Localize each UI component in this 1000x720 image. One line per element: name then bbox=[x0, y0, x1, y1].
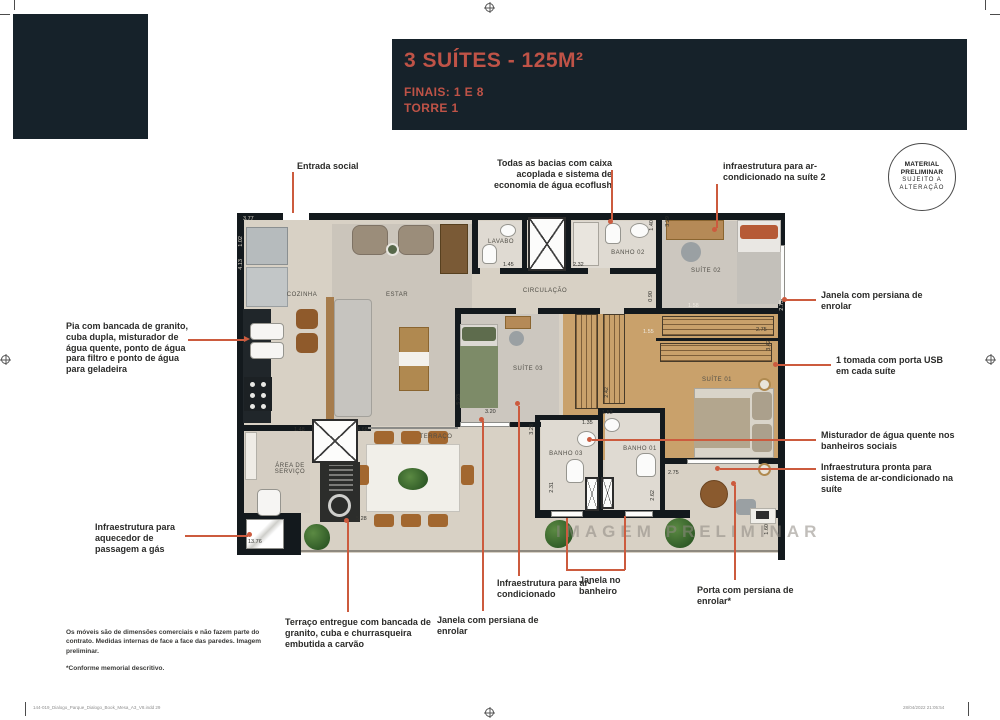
leader-line bbox=[188, 339, 244, 341]
registration-mark-icon bbox=[1, 355, 10, 364]
disclaimer-text: Os móveis são de dimensões comerciais e … bbox=[66, 628, 271, 656]
shower-banho02 bbox=[573, 222, 599, 266]
toilet-banho02 bbox=[605, 223, 621, 244]
room-label-banho02: BANHO 02 bbox=[603, 250, 653, 256]
entrada-door-gap bbox=[283, 213, 309, 220]
room-label-terraco: TERRAÇO bbox=[412, 434, 460, 440]
measurement: 3.29 bbox=[665, 216, 671, 227]
leader-line bbox=[734, 485, 736, 580]
kitchen-cabinet bbox=[246, 267, 288, 307]
room-label-banho03: BANHO 03 bbox=[542, 451, 590, 457]
closet-suite01 bbox=[660, 343, 772, 362]
armchair bbox=[352, 225, 388, 255]
callout-bacias: Todas as bacias com caixa acoplada e sis… bbox=[480, 158, 612, 190]
window-banho03 bbox=[551, 511, 583, 517]
table-plant bbox=[398, 468, 428, 490]
terraco-chair bbox=[374, 431, 394, 444]
terraco-chair bbox=[428, 514, 448, 527]
pillow-suite01 bbox=[752, 424, 772, 452]
wall-top bbox=[237, 213, 785, 220]
tv-rack bbox=[440, 224, 468, 274]
registration-mark-icon bbox=[485, 708, 494, 717]
leader-line bbox=[566, 518, 568, 570]
stove bbox=[244, 377, 272, 411]
leader-dot bbox=[608, 219, 613, 224]
measurement: 1.02 bbox=[238, 236, 244, 247]
shaft-box bbox=[601, 477, 614, 509]
crop-mark bbox=[985, 0, 986, 10]
plant bbox=[304, 524, 330, 550]
leader-dot bbox=[344, 518, 349, 523]
leader-line bbox=[786, 299, 816, 301]
terraco-chair bbox=[401, 514, 421, 527]
stool bbox=[296, 309, 318, 329]
room-label-cozinha: COZINHA bbox=[272, 292, 332, 298]
desk-suite03 bbox=[505, 316, 531, 329]
leader-line bbox=[482, 421, 484, 611]
callout-porta-persiana: Porta com persiana de enrolar* bbox=[697, 585, 797, 607]
callout-infra-aquecedor: Infraestrutura para aquecedor de passage… bbox=[95, 522, 190, 554]
watermark: IMAGEM PRELIMINAR bbox=[556, 522, 821, 542]
leader-dot bbox=[247, 532, 252, 537]
measurement: 13.76 bbox=[248, 539, 262, 545]
round-mirror bbox=[758, 463, 771, 476]
badge-line: PRELIMINAR bbox=[901, 169, 943, 177]
callout-janela-persiana-baixo: Janela com persiana de enrolar bbox=[437, 615, 542, 637]
corner-block bbox=[13, 14, 148, 139]
badge-line: SUJEITO A bbox=[902, 177, 942, 185]
window-banho01 bbox=[625, 511, 653, 517]
pillow-suite03 bbox=[462, 327, 496, 341]
stool bbox=[296, 333, 318, 353]
window-suite03 bbox=[460, 422, 510, 427]
door-gap-lavabo bbox=[480, 268, 500, 274]
callout-entrada-social: Entrada social bbox=[297, 161, 359, 172]
measurement: 1.53 bbox=[602, 410, 613, 416]
measurement: 2.75 bbox=[668, 470, 679, 476]
registration-mark-icon bbox=[485, 3, 494, 12]
measurement: 1.60 bbox=[764, 524, 770, 535]
measurement: 3.20 bbox=[485, 409, 496, 415]
leader-dot bbox=[587, 437, 592, 442]
measurement: 0.90 bbox=[648, 291, 654, 302]
door-gap-banho02 bbox=[588, 268, 610, 274]
measurement: 2.62 bbox=[650, 490, 656, 501]
fridge bbox=[246, 227, 288, 265]
round-table bbox=[700, 480, 728, 508]
laptop bbox=[756, 511, 769, 519]
grill-vents bbox=[329, 465, 353, 491]
tanque bbox=[257, 489, 281, 516]
service-door bbox=[245, 432, 257, 480]
leader-dot bbox=[515, 401, 520, 406]
measurement: 4.68 bbox=[357, 427, 368, 433]
crop-mark bbox=[14, 0, 15, 10]
leader-line bbox=[566, 569, 625, 571]
measurement: 2.31 bbox=[549, 482, 555, 493]
shaft-box bbox=[528, 217, 566, 271]
room-label-suite02: SUÍTE 02 bbox=[681, 268, 731, 274]
measurement: 1.55 bbox=[643, 329, 654, 335]
leader-line bbox=[185, 535, 248, 537]
measurement: 5.23 bbox=[456, 394, 462, 405]
registration-mark-icon bbox=[986, 355, 995, 364]
room-label-circulacao: CIRCULAÇÃO bbox=[514, 288, 576, 294]
leader-line bbox=[347, 522, 349, 612]
room-label-lavabo: LAVABO bbox=[479, 239, 523, 245]
cover-suite03 bbox=[460, 346, 498, 408]
room-label-suite01: SUÍTE 01 bbox=[692, 377, 742, 383]
room-label-suite03: SUÍTE 03 bbox=[503, 366, 553, 372]
toilet-banho03 bbox=[566, 459, 584, 483]
room-label-estar: ESTAR bbox=[372, 292, 422, 298]
wall-banho03-left bbox=[535, 415, 540, 515]
sink-banho01 bbox=[604, 418, 620, 432]
table-runner bbox=[399, 352, 429, 366]
measurement: 1.48 bbox=[294, 427, 305, 433]
crop-mark bbox=[25, 702, 26, 716]
leader-line bbox=[624, 516, 626, 570]
measurement: 2.32 bbox=[573, 262, 584, 268]
file-info: 144-019_Dialogo_Parque_Dialogo_Book_Mesa… bbox=[33, 705, 160, 710]
crop-mark bbox=[968, 702, 969, 716]
wall-shaft-right bbox=[566, 213, 571, 274]
side-table bbox=[386, 243, 399, 256]
leader-dot bbox=[773, 362, 778, 367]
sliding-door-frame bbox=[368, 427, 458, 429]
measurement: 1.35 bbox=[582, 420, 593, 426]
badge-line: MATERIAL bbox=[905, 161, 940, 169]
grill-icon bbox=[328, 494, 351, 517]
leader-line bbox=[716, 184, 718, 228]
preliminary-badge: MATERIAL PRELIMINAR SUJEITO A ALTERAÇÃO bbox=[888, 143, 956, 211]
measurement: 3.28 bbox=[529, 424, 535, 435]
callout-misturador: Misturador de água quente nos banheiros … bbox=[821, 430, 959, 452]
shaft-box bbox=[585, 477, 599, 511]
memorial-note: *Conforme memorial descritivo. bbox=[66, 664, 271, 673]
measurement: 2.75 bbox=[756, 327, 767, 333]
wall-circulacao-bottom bbox=[455, 308, 660, 314]
closet-suite02 bbox=[662, 316, 774, 336]
leader-line bbox=[720, 468, 816, 470]
callout-tomada-usb: 1 tomada com porta USB em cada suíte bbox=[836, 355, 956, 377]
blanket-suite02 bbox=[737, 252, 781, 304]
leader-dot bbox=[712, 227, 717, 232]
sofa bbox=[334, 299, 372, 417]
terraco-chair bbox=[374, 514, 394, 527]
wall-lavabo-left bbox=[472, 213, 478, 274]
chair-suite02 bbox=[681, 242, 701, 262]
armchair bbox=[398, 225, 434, 255]
measurement: 3.77 bbox=[243, 216, 254, 222]
wall-suite02-left bbox=[656, 213, 662, 314]
sink-banho02 bbox=[630, 223, 649, 238]
room-label-banho01: BANHO 01 bbox=[616, 446, 664, 452]
leader-line bbox=[518, 406, 520, 576]
callout-infra-suite2: infraestrutura para ar-condicionado na s… bbox=[723, 161, 835, 183]
leader-line bbox=[611, 170, 613, 220]
crop-mark bbox=[0, 14, 10, 15]
leader-arrow bbox=[244, 336, 250, 342]
terraco-chair bbox=[461, 465, 474, 485]
leader-line bbox=[292, 172, 294, 213]
badge-line: ALTERAÇÃO bbox=[900, 185, 945, 193]
brochure-page: 3 SUÍTES - 125M² FINAIS: 1 E 8 TORRE 1 M… bbox=[0, 0, 1000, 720]
toilet-banho01 bbox=[636, 453, 656, 477]
header-torre: TORRE 1 bbox=[404, 101, 459, 115]
stove-burners bbox=[250, 382, 255, 387]
leader-dot bbox=[715, 466, 720, 471]
measurement: 5.28 bbox=[356, 516, 367, 522]
sofa-console bbox=[326, 297, 334, 419]
header-finais: FINAIS: 1 E 8 bbox=[404, 85, 484, 99]
pillow-suite01 bbox=[752, 392, 772, 420]
terraco-edge bbox=[301, 550, 778, 552]
porta-persiana-sill bbox=[687, 459, 759, 464]
churrasqueira bbox=[320, 462, 360, 522]
pillow-suite02 bbox=[740, 225, 778, 239]
leader-dot bbox=[731, 481, 736, 486]
door-gap-suite03 bbox=[516, 308, 538, 314]
wall-suite02-bottom bbox=[656, 308, 785, 314]
print-timestamp: 28/04/2022 21:05:54 bbox=[903, 705, 944, 710]
leader-dot bbox=[479, 417, 484, 422]
leader-dot bbox=[782, 297, 787, 302]
measurement: 4.13 bbox=[238, 259, 244, 270]
kitchen-sink bbox=[250, 323, 284, 340]
callout-pia: Pia com bancada de granito, cuba dupla, … bbox=[66, 321, 194, 375]
measurement: 1.40 bbox=[649, 220, 655, 231]
round-mirror bbox=[758, 378, 771, 391]
blanket-suite01 bbox=[694, 398, 750, 448]
measurement: 3.42 bbox=[766, 340, 772, 351]
callout-infra-ar: Infraestrutura para ar-condicionado bbox=[497, 578, 593, 600]
callout-terraco-entregue: Terraço entregue com bancada de granito,… bbox=[285, 617, 437, 649]
page-title: 3 SUÍTES - 125M² bbox=[404, 49, 584, 73]
leader-line bbox=[592, 439, 816, 441]
wall-circulacao-top bbox=[472, 268, 662, 274]
measurement: 1.45 bbox=[503, 262, 514, 268]
callout-janela-persiana-direita: Janela com persiana de enrolar bbox=[821, 290, 929, 312]
toilet-lavabo bbox=[482, 244, 497, 264]
leader-line bbox=[777, 364, 831, 366]
wardrobe-corredor-1 bbox=[575, 314, 598, 409]
room-label-area-servico: ÁREA DE SERVIÇO bbox=[266, 463, 314, 475]
callout-infra-pronta: Infraestrutura pronta para sistema de ar… bbox=[821, 462, 957, 494]
kitchen-sink bbox=[250, 342, 284, 359]
sink-lavabo bbox=[500, 224, 516, 237]
measurement: 2.42 bbox=[604, 387, 610, 398]
shaft-box bbox=[312, 419, 358, 463]
crop-mark bbox=[990, 14, 1000, 15]
measurement: 1.58 bbox=[688, 303, 699, 309]
chair-suite03 bbox=[509, 331, 524, 346]
